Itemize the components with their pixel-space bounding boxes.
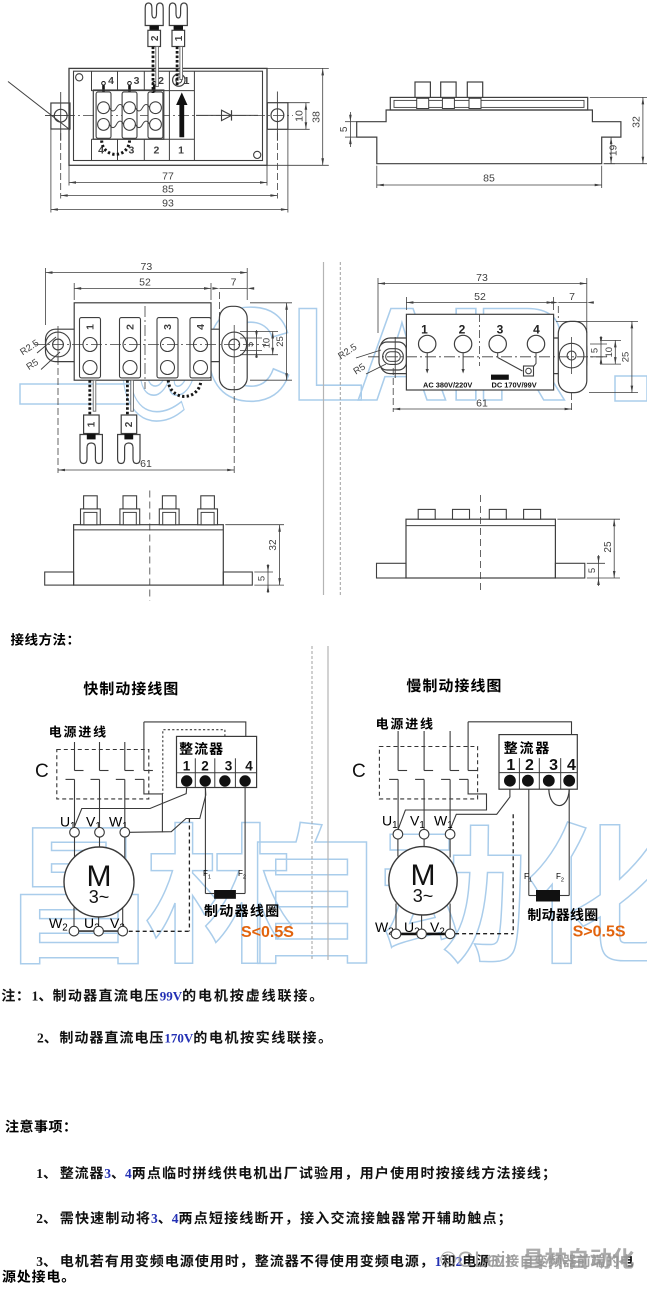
svg-text:2: 2 <box>525 757 534 774</box>
svg-text:61: 61 <box>140 458 152 470</box>
svg-text:1: 1 <box>36 1166 43 1181</box>
svg-text:4: 4 <box>567 757 576 774</box>
svg-text:1: 1 <box>178 145 184 157</box>
svg-text:52: 52 <box>139 277 151 289</box>
svg-text:4: 4 <box>195 324 207 330</box>
svg-text:7: 7 <box>569 291 575 303</box>
svg-text:3: 3 <box>225 758 233 773</box>
svg-text:F1: F1 <box>524 872 532 884</box>
svg-text:2: 2 <box>124 421 135 427</box>
svg-text:U1: U1 <box>382 813 398 832</box>
svg-text:3: 3 <box>151 1211 158 1226</box>
svg-text:W2: W2 <box>49 915 68 934</box>
svg-text:5: 5 <box>590 348 601 353</box>
svg-text:2: 2 <box>201 758 209 773</box>
svg-text:1: 1 <box>421 323 428 337</box>
svg-text:4: 4 <box>172 1211 179 1226</box>
svg-text:170V: 170V <box>164 1031 194 1046</box>
svg-text:2: 2 <box>37 1031 44 1046</box>
svg-text:10: 10 <box>604 347 615 358</box>
svg-text:25: 25 <box>603 541 614 553</box>
svg-text:2: 2 <box>125 324 137 330</box>
svg-text:2: 2 <box>459 323 466 337</box>
svg-text:V1: V1 <box>410 813 425 832</box>
svg-text:3~: 3~ <box>413 886 434 906</box>
svg-text:4: 4 <box>245 758 253 773</box>
svg-text:5: 5 <box>339 126 350 132</box>
svg-text:C: C <box>352 761 366 782</box>
svg-text:4: 4 <box>108 75 114 87</box>
svg-text:5: 5 <box>257 576 268 581</box>
svg-text:©CLair: ©CLair <box>440 1247 515 1272</box>
svg-text:10: 10 <box>261 338 272 349</box>
svg-text:7: 7 <box>231 277 237 289</box>
svg-text:4: 4 <box>125 1166 132 1181</box>
svg-text:3: 3 <box>134 75 140 87</box>
svg-text:DC 170V/99V: DC 170V/99V <box>492 381 537 390</box>
svg-text:AC 380V/220V: AC 380V/220V <box>423 381 472 390</box>
svg-text:99V: 99V <box>160 989 183 1004</box>
svg-text:1: 1 <box>174 35 185 41</box>
svg-text:3: 3 <box>549 757 558 774</box>
svg-text:2: 2 <box>36 1211 43 1226</box>
svg-text:3~: 3~ <box>89 887 110 907</box>
svg-text:2: 2 <box>153 145 159 157</box>
svg-text:25: 25 <box>621 352 632 363</box>
svg-text:1: 1 <box>183 758 191 773</box>
svg-text:3: 3 <box>497 323 504 337</box>
svg-text:85: 85 <box>162 184 174 196</box>
svg-text:1: 1 <box>32 989 39 1004</box>
svg-text:C: C <box>35 761 49 782</box>
svg-text:32: 32 <box>268 539 279 551</box>
svg-text:25: 25 <box>275 336 286 347</box>
svg-text:38: 38 <box>310 111 322 123</box>
svg-text:2: 2 <box>158 75 164 87</box>
svg-text:R2.5: R2.5 <box>18 338 41 358</box>
svg-text:5: 5 <box>245 342 256 347</box>
svg-text:1: 1 <box>86 421 97 427</box>
svg-text:1: 1 <box>85 324 97 330</box>
svg-text:S>0.5S: S>0.5S <box>573 924 626 941</box>
svg-text:4: 4 <box>533 323 540 337</box>
svg-text:93: 93 <box>162 198 174 210</box>
svg-text:73: 73 <box>476 272 488 284</box>
svg-text:3: 3 <box>36 1254 43 1269</box>
svg-text:R5: R5 <box>25 357 41 373</box>
svg-text:77: 77 <box>162 171 174 183</box>
svg-text:73: 73 <box>141 261 153 273</box>
svg-text:2: 2 <box>150 35 161 41</box>
svg-text:3: 3 <box>162 324 174 330</box>
svg-text:3: 3 <box>104 1166 111 1181</box>
svg-text:L: L <box>291 281 365 429</box>
svg-text:1: 1 <box>506 757 515 774</box>
svg-text:F2: F2 <box>556 872 564 884</box>
svg-text:85: 85 <box>483 173 495 185</box>
svg-text:5: 5 <box>587 568 598 573</box>
svg-text:61: 61 <box>476 398 488 410</box>
svg-text:S<0.5S: S<0.5S <box>241 924 294 941</box>
svg-text:52: 52 <box>474 291 486 303</box>
svg-text:19: 19 <box>609 144 620 156</box>
svg-text:10: 10 <box>294 110 306 122</box>
svg-text:32: 32 <box>631 116 643 128</box>
